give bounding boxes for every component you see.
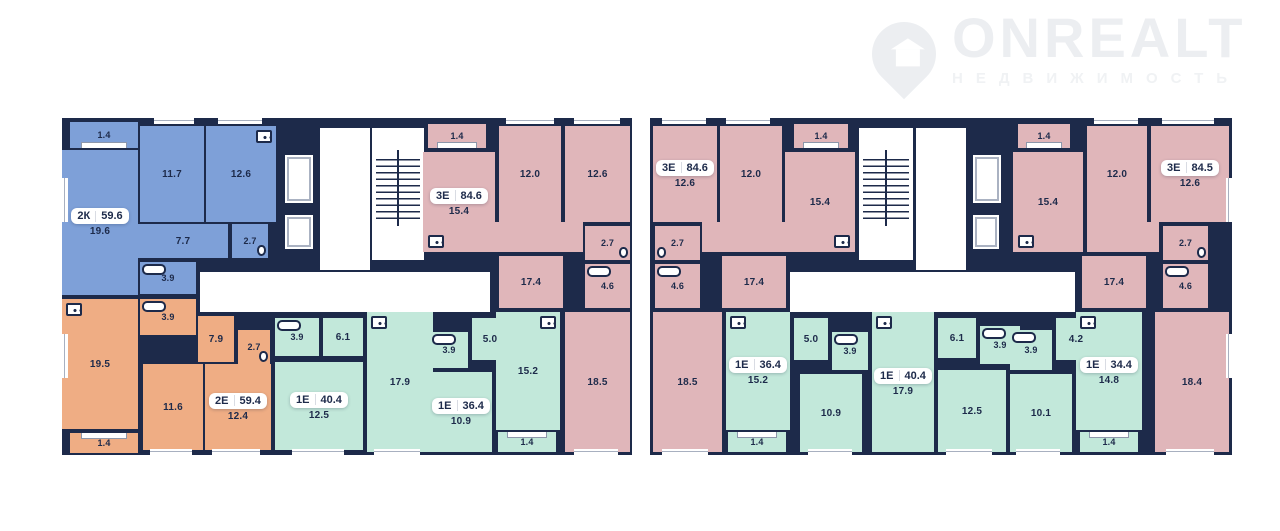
room-living: 19.5 [62,299,138,429]
room-balcony: 1.4 [728,432,786,452]
balcony-window-icon [803,142,840,148]
apartment-badge[interactable]: 1Е40.4 [874,368,932,384]
room-hall: 7.7 [138,224,228,258]
room-area-label: 4.6 [1179,281,1192,291]
badge-divider [455,190,456,201]
room-area-label: 10.9 [821,408,841,419]
window-icon [662,118,706,124]
room-living: 17.9 [367,312,433,452]
window-icon [218,118,262,124]
room-area-label: 6.1 [336,332,351,343]
room-area-label: 10.1 [1031,408,1051,419]
toilet-icon [257,245,266,256]
stove-icon [66,303,82,316]
room-area-label: 10.9 [451,416,471,427]
room-wc: 2.7 [238,330,270,364]
window-icon [574,449,618,455]
room-wc: 2.7 [1163,226,1208,260]
room-bath: 3.9 [140,262,196,294]
room-bath: 3.9 [832,332,868,370]
room-balcony: 1.4 [70,122,138,148]
corridor [200,272,490,312]
apartment-badge[interactable]: 3Е84.5 [1161,160,1219,176]
bathtub-icon [1012,332,1036,343]
room-hall: 7.9 [198,316,234,362]
badge-divider [457,400,458,411]
window-icon [1162,118,1214,124]
room-living: 3Е84.6 15.4 [423,152,495,252]
apartment-type: 1Е [438,400,451,412]
apartment-type: 1Е [296,394,309,406]
room-living: 1Е40.4 17.9 [872,312,934,452]
elevator-lobby [320,128,370,270]
room-area-label: 17.9 [390,377,410,388]
room-living: 1Е34.4 14.8 [1076,312,1142,430]
room-bedroom: 12.6 [565,126,630,222]
room-hallway [702,222,788,252]
room-area-label: 7.7 [176,236,191,247]
room-area-label: 3.9 [161,273,174,283]
room-area-label: 12.0 [741,169,761,180]
stairs [372,128,424,260]
brand-subtitle: НЕДВИЖИМОСТЬ [952,70,1247,87]
window-icon [808,449,852,455]
room-area-label: 3.9 [290,332,303,342]
room-bedroom: 3Е84.6 12.6 [653,126,717,222]
stove-icon [730,316,746,329]
apartment-area: 36.4 [760,359,781,371]
room-bedroom: 12.5 [938,370,1006,452]
bathtub-icon [432,334,456,345]
room-bath: 3.9 [275,318,319,356]
room-area-label: 5.0 [804,334,819,345]
window-icon [946,449,992,455]
apartment-type: 2К [77,210,90,222]
apartment-type: 1Е [735,359,748,371]
room-area-label: 3.9 [843,346,856,356]
room-wc: 2.7 [655,226,700,260]
room-kitchen: 17.4 [722,256,786,308]
room-area-label: 6.1 [950,333,965,344]
corridor [790,272,1075,312]
stair-treads-icon [376,154,420,222]
room-area-label: 15.4 [1038,197,1058,208]
elevator [282,152,316,206]
room-bath: 4.6 [1163,264,1208,308]
window-icon [1226,334,1232,378]
room-balcony: 1.4 [428,124,486,148]
room-area-label: 12.0 [520,169,540,180]
room-bath: 4.6 [655,264,700,308]
room-kitchen: 17.4 [1082,256,1146,308]
stove-icon [540,316,556,329]
room-area-label: 12.6 [675,178,695,189]
room-area-label: 17.9 [893,386,913,397]
balcony-window-icon [1026,142,1061,148]
stove-icon [256,130,272,143]
logo-pin-icon [859,8,950,99]
room-bedroom: 1Е40.4 12.5 [275,362,363,450]
stove-icon [834,235,850,248]
room-area-label: 1.4 [97,438,110,448]
room-hallway [1087,222,1159,252]
room-bedroom: 11.7 [140,126,204,222]
elevator [970,152,1004,206]
window-icon [662,449,708,455]
room-living: 15.4 [1013,152,1083,252]
apartment-type: 1Е [1086,359,1099,371]
bathtub-icon [982,328,1006,339]
room-area-label: 1.4 [97,130,110,140]
elevator [282,212,316,252]
room-area-label: 12.4 [228,411,248,422]
apartment-area: 84.6 [461,190,482,202]
room-area-label: 12.0 [1107,169,1127,180]
balcony-window-icon [81,142,127,148]
logo-text: ONREALT НЕДВИЖИМОСТЬ [952,10,1247,87]
room-hall: 5.0 [794,318,828,360]
room-bedroom: 12.0 [1087,126,1147,222]
bathtub-icon [834,334,858,345]
room-bath: 4.6 [585,264,630,308]
room-area-label: 11.6 [163,402,183,413]
room-balcony: 1.4 [70,433,138,453]
room-area-label: 1.4 [450,131,463,141]
room-bedroom: 12.0 [499,126,561,222]
apartment-area: 40.4 [905,370,926,382]
balcony-window-icon [437,142,476,148]
room-area-label: 3.9 [993,340,1006,350]
window-icon [292,449,344,455]
apartment-area: 59.6 [101,210,122,222]
room-bath: 3.9 [1010,330,1052,370]
room-area-label: 1.4 [1102,437,1115,447]
window-icon [1094,118,1138,124]
room-area-label: 18.5 [677,377,697,388]
bathtub-icon [1165,266,1189,277]
room-bath: 3.9 [430,332,468,368]
window-icon [150,449,192,455]
window-icon [574,118,620,124]
apartment-badge[interactable]: 1Е34.4 [1080,357,1138,373]
stairs [859,128,913,260]
toilet-icon [657,247,666,258]
stove-icon [1080,316,1096,329]
building-section-2: 3Е84.6 12.6 12.0 1.4 15.4 2.7 4.6 17.4 1… [650,118,1232,455]
room-bedroom: 3Е84.5 12.6 [1151,126,1229,222]
badge-divider [315,394,316,405]
room-area-label: 12.6 [587,169,607,180]
brand-logo: ONREALT НЕДВИЖИМОСТЬ [872,10,1247,87]
room-area-label: 17.4 [1104,277,1124,288]
room-area-label: 7.9 [209,334,224,345]
room-bedroom: 11.6 [143,364,203,450]
room-area-label: 3.9 [161,312,174,322]
elevator-lobby [916,128,966,270]
apartment-badge[interactable]: 2Е59.4 [209,393,267,409]
apartment-type: 1Е [880,370,893,382]
building-section-1: 1.4 2К59.6 19.6 11.7 12.6 7.7 2.7 3.9 19… [62,118,632,455]
window-icon [62,178,68,222]
badge-divider [95,211,96,222]
brand-name: ONREALT [952,10,1247,66]
elevator [970,212,1002,252]
apartment-type: 2Е [215,395,228,407]
room-area-label: 5.0 [483,334,498,345]
room-area-label: 19.6 [90,226,110,237]
room-area-label: 3.9 [1024,345,1037,355]
house-icon [896,49,920,66]
room-hall: 6.1 [938,318,976,358]
room-balcony: 1.4 [498,432,556,452]
apartment-area: 40.4 [321,394,342,406]
room-area-label: 1.4 [750,437,763,447]
apartment-area: 59.4 [240,395,261,407]
room-area-label: 12.5 [962,406,982,417]
window-icon [506,118,554,124]
stair-treads-icon [863,154,909,222]
window-icon [212,449,260,455]
room-wc: 2.7 [585,226,630,260]
room-area-label: 3.9 [442,345,455,355]
stove-icon [1018,235,1034,248]
window-icon [154,118,194,124]
toilet-icon [1197,247,1206,258]
room-area-label: 12.5 [309,410,329,421]
apartment-badge[interactable]: 2К59.6 [71,208,128,224]
badge-divider [754,359,755,370]
room-area-label: 18.4 [1182,377,1202,388]
room-area-label: 15.2 [748,375,768,386]
bathtub-icon [142,301,166,312]
badge-divider [899,370,900,381]
apartment-badge[interactable]: 1Е40.4 [290,392,348,408]
bathtub-icon [587,266,611,277]
room-area-label: 4.6 [671,281,684,291]
room-area-label: 2.7 [671,238,684,248]
room-bedroom: 10.9 [800,374,862,452]
bathtub-icon [657,266,681,277]
room-area-label: 2.7 [1179,238,1192,248]
apartment-area: 84.6 [687,162,708,174]
room-balcony: 1.4 [1018,124,1070,148]
room-area-label: 2.7 [243,236,256,246]
stove-icon [428,235,444,248]
room-area-label: 1.4 [1037,131,1050,141]
room-area-label: 19.5 [90,359,110,370]
window-icon [1016,449,1060,455]
room-balcony: 1.4 [794,124,848,148]
apartment-area: 36.4 [463,400,484,412]
stove-icon [371,316,387,329]
room-bedroom: 10.1 [1010,374,1072,452]
room-area-label: 2.7 [247,342,260,352]
window-icon [62,334,68,378]
room-kitchen: 17.4 [499,256,563,308]
room-area-label: 1.4 [520,437,533,447]
room-wc: 2.7 [232,224,268,258]
room-area-label: 15.4 [810,197,830,208]
room-area-label: 1.4 [814,131,827,141]
badge-divider [1105,359,1106,370]
stove-icon [876,316,892,329]
room-area-label: 17.4 [521,277,541,288]
bathtub-icon [277,320,301,331]
room-area-label: 18.5 [587,377,607,388]
apartment-badge[interactable]: 3Е84.6 [656,160,714,176]
room-kitchen: 12.6 [206,126,276,222]
room-bedroom: 18.5 [565,312,630,452]
room-area-label: 12.6 [1180,178,1200,189]
room-living: 1Е36.4 15.2 [726,312,790,430]
apartment-area: 84.5 [1192,162,1213,174]
room-area-label: 4.2 [1069,334,1084,345]
room-bedroom: 1Е36.4 10.9 [430,372,492,452]
apartment-type: 3Е [436,190,449,202]
room-hall: 6.1 [323,318,363,356]
room-living: 15.4 [785,152,855,252]
apartment-badge[interactable]: 1Е36.4 [432,398,490,414]
room-area-label: 4.6 [601,281,614,291]
badge-divider [1186,162,1187,173]
room-area-label: 15.2 [518,366,538,377]
room-hallway [495,222,583,252]
apartment-area: 34.4 [1111,359,1132,371]
window-icon [726,118,770,124]
room-bedroom: 18.5 [653,312,722,452]
apartment-type: 3Е [662,162,675,174]
toilet-icon [619,247,628,258]
apartment-type: 3Е [1167,162,1180,174]
window-icon [374,449,420,455]
apartment-badge[interactable]: 1Е36.4 [729,357,787,373]
badge-divider [234,395,235,406]
apartment-badge[interactable]: 3Е84.6 [430,188,488,204]
room-bath: 3.9 [140,299,196,335]
room-area-label: 12.6 [231,169,251,180]
room-balcony: 1.4 [1080,432,1138,452]
room-bedroom: 18.4 [1155,312,1229,452]
room-living: 2К59.6 19.6 [62,150,138,295]
toilet-icon [259,351,268,362]
room-area-label: 17.4 [744,277,764,288]
room-area-label: 11.7 [162,169,182,180]
room-area-label: 15.4 [449,206,469,217]
window-icon [1226,178,1232,222]
badge-divider [681,162,682,173]
room-bedroom: 2Е59.4 12.4 [205,364,271,450]
room-area-label: 14.8 [1099,375,1119,386]
room-living: 15.2 [496,312,560,430]
room-area-label: 2.7 [601,238,614,248]
room-bedroom: 12.0 [720,126,782,222]
window-icon [1166,449,1214,455]
